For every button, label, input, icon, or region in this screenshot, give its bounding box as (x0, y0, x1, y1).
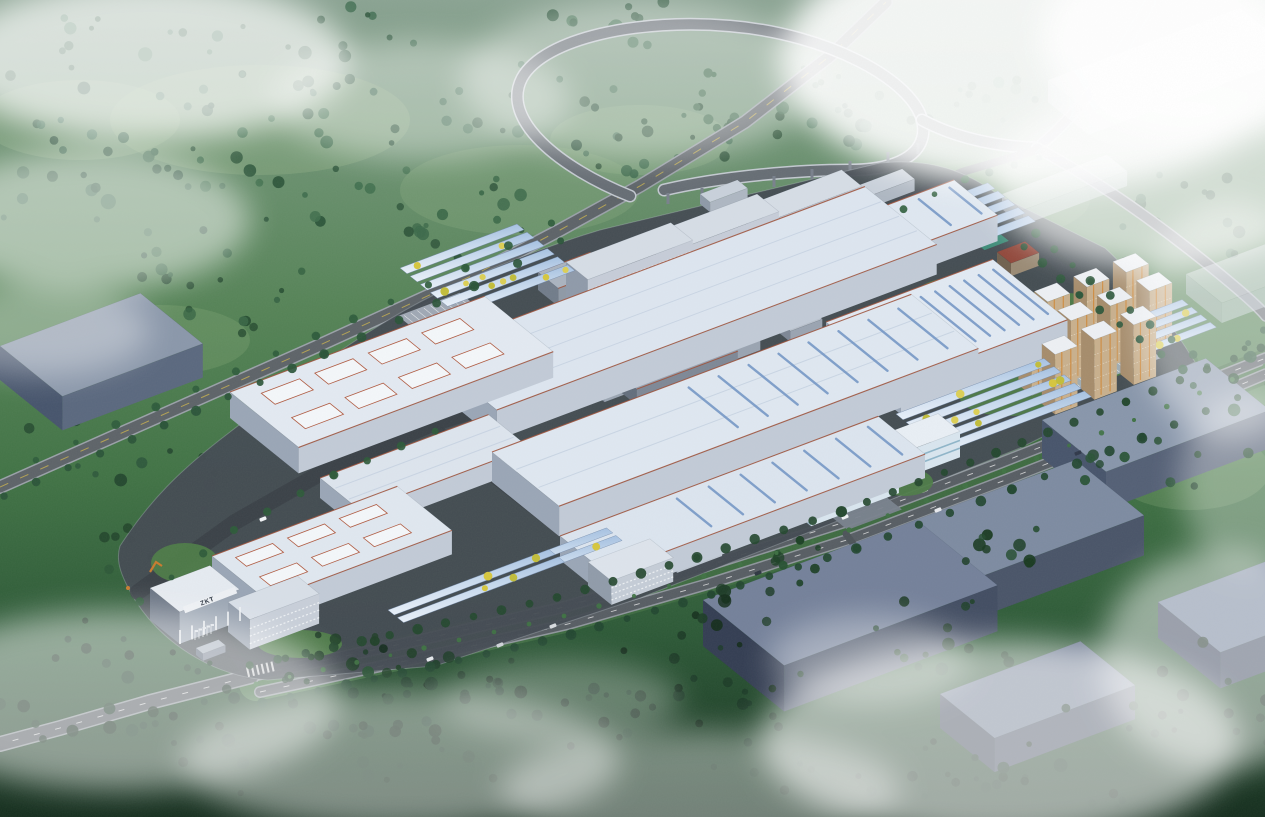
rendering-canvas: ZKT (0, 0, 1265, 817)
scan-grain-overlay (0, 0, 1265, 817)
aerial-site-rendering: ZKT (0, 0, 1265, 817)
